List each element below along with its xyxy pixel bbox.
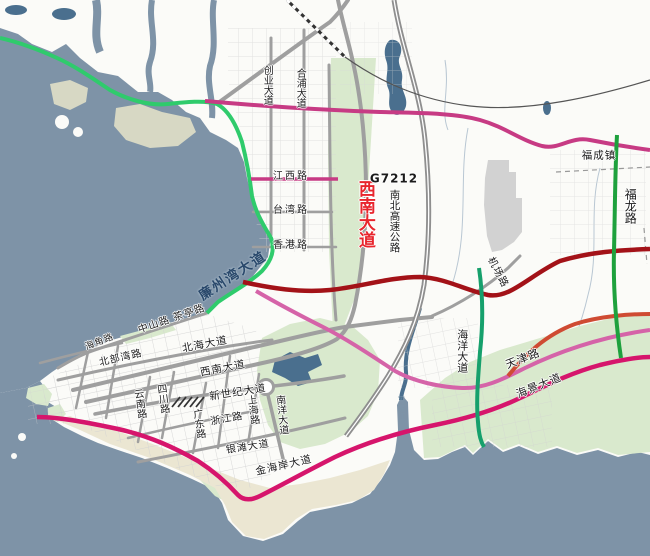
map-graphics xyxy=(0,0,650,556)
roundabout xyxy=(259,380,274,395)
map-canvas: 创业大道 合浦大道 江西路 台湾路 香港路 西南大道 G7212 南北高速公路 … xyxy=(0,0,650,556)
